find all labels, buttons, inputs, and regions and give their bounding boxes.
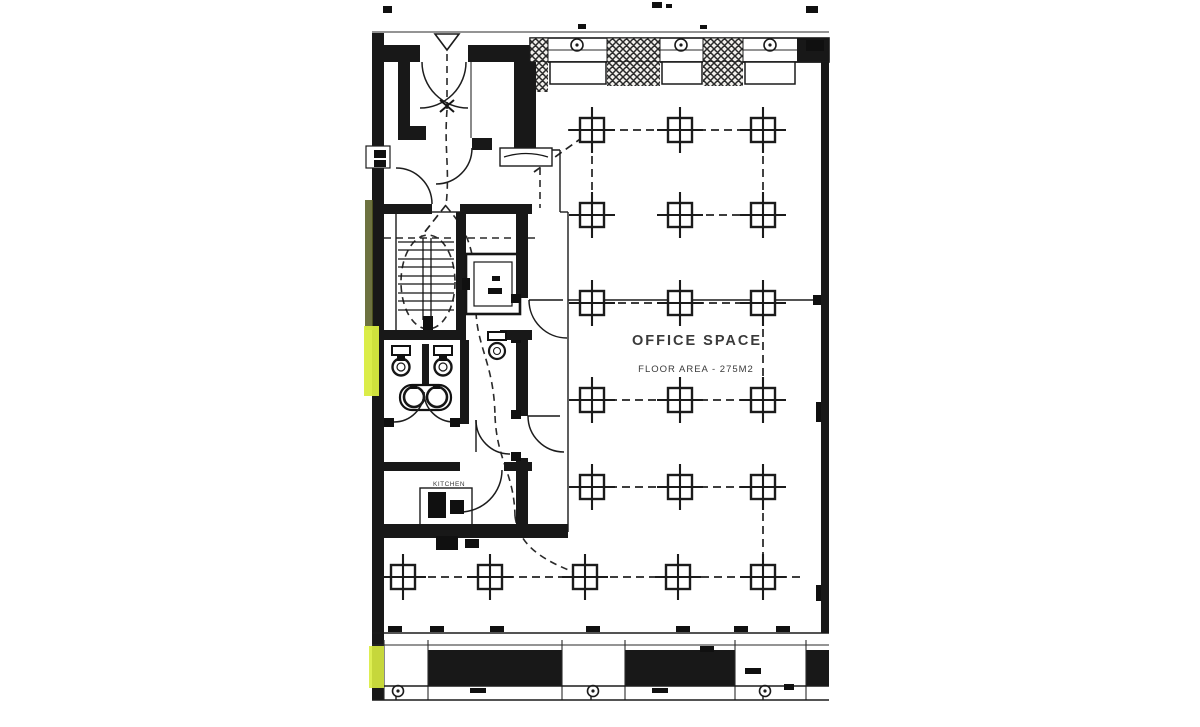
hatched-pier: [607, 62, 660, 86]
yellow-highlight: [369, 646, 384, 688]
pier: [806, 650, 829, 686]
core-bottom-wall: [372, 524, 568, 538]
wc-pan: [392, 346, 410, 376]
stair-newel: [423, 316, 433, 332]
hatched-pier: [703, 62, 743, 86]
wc-pan: [434, 346, 452, 376]
window-reference-tag: [806, 40, 824, 51]
paper-background: [0, 0, 1200, 727]
cubicle-divider: [422, 344, 429, 386]
hatched-pier: [607, 38, 660, 62]
floor-area-label: FLOOR AREA - 275M2: [638, 364, 754, 375]
radiator-box: [500, 148, 552, 166]
pier: [625, 650, 735, 686]
hatched-pier: [703, 38, 743, 62]
pier: [428, 650, 562, 686]
window-reveal: [662, 62, 702, 84]
kitchen-sink: [428, 492, 446, 518]
floor-plan-drawing: KITCHEN OFFICE SPACE: [0, 0, 1200, 727]
floor-plan-page: KITCHEN OFFICE SPACE: [0, 0, 1200, 727]
wash-basins: [400, 384, 451, 410]
office-space-label: OFFICE SPACE: [632, 333, 762, 349]
lift-shaft: [462, 254, 520, 314]
wall-shade-mark: [365, 200, 373, 330]
hatched-pier: [530, 38, 548, 62]
right-wall: [821, 62, 829, 633]
kitchen-label: KITCHEN: [433, 481, 465, 488]
window-reveal: [550, 62, 606, 84]
yellow-highlight: [364, 326, 379, 396]
window-reveal: [745, 62, 795, 84]
